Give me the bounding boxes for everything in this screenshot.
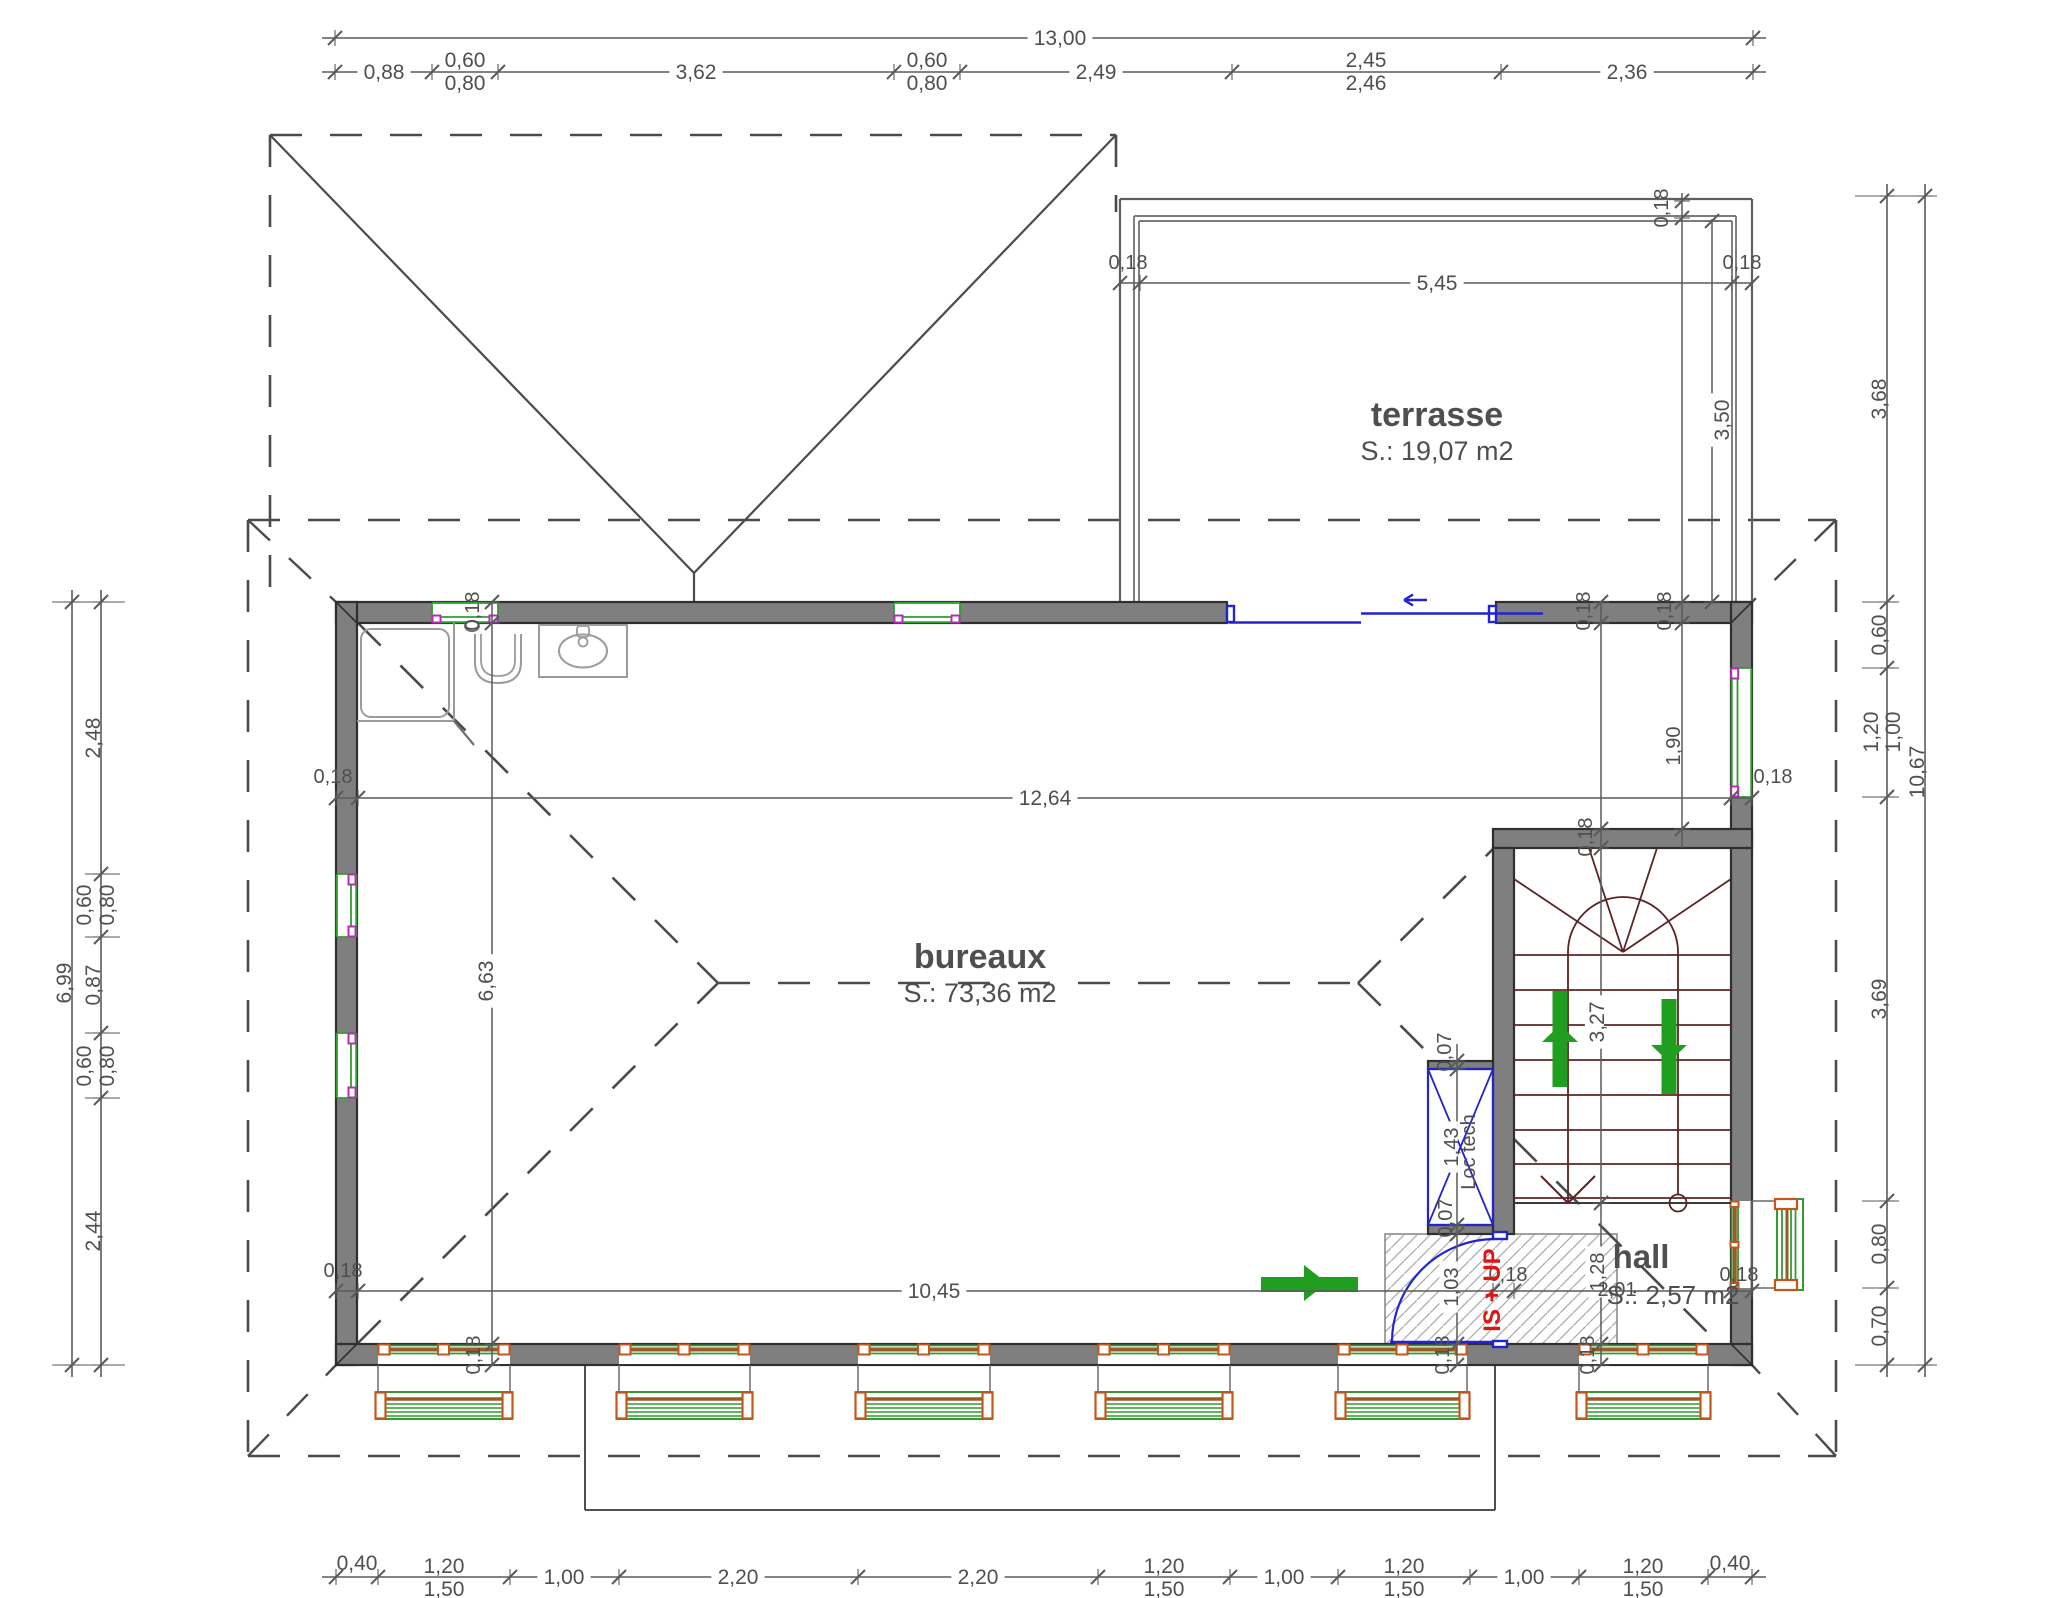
svg-text:2,49: 2,49 [1076,61,1117,84]
svg-text:bureaux: bureaux [914,938,1046,976]
svg-text:0,18: 0,18 [1577,1336,1599,1375]
svg-text:0,18: 0,18 [1575,818,1597,857]
svg-text:6,63: 6,63 [475,961,498,1002]
svg-text:1,00: 1,00 [1504,1566,1545,1589]
svg-text:1,90: 1,90 [1663,727,1685,766]
svg-text:2,36: 2,36 [1607,61,1648,84]
svg-text:2,20: 2,20 [958,1566,999,1589]
svg-text:0,80: 0,80 [445,72,486,95]
svg-text:S.: 2,57 m2: S.: 2,57 m2 [1607,1280,1740,1310]
svg-text:5,45: 5,45 [1417,272,1458,295]
svg-text:0,18: 0,18 [314,766,353,788]
svg-text:IS + UP: IS + UP [1479,1248,1506,1331]
svg-text:1,03: 1,03 [1441,1268,1463,1307]
svg-text:0,60: 0,60 [1868,615,1891,656]
svg-text:1,50: 1,50 [1623,1578,1664,1598]
svg-text:0,07: 0,07 [1434,1033,1456,1072]
svg-text:0,88: 0,88 [364,61,405,84]
svg-text:1,50: 1,50 [424,1578,465,1598]
svg-text:0,18: 0,18 [1723,252,1762,274]
svg-text:0,60: 0,60 [73,885,96,926]
svg-text:0,18: 0,18 [1754,766,1793,788]
svg-text:1,00: 1,00 [1264,1566,1305,1589]
svg-text:1,50: 1,50 [1384,1578,1425,1598]
svg-text:0,18: 0,18 [1654,592,1676,631]
svg-text:0,60: 0,60 [445,49,486,72]
svg-text:2,46: 2,46 [1346,72,1387,95]
svg-text:0,80: 0,80 [96,885,119,926]
svg-text:hall: hall [1613,1238,1670,1275]
svg-text:1,00: 1,00 [1882,712,1905,753]
svg-text:3,69: 3,69 [1868,979,1891,1020]
svg-text:0,40: 0,40 [1710,1552,1751,1575]
svg-text:terrasse: terrasse [1371,396,1503,434]
svg-text:1,20: 1,20 [1860,712,1883,753]
svg-text:0,80: 0,80 [96,1046,119,1087]
svg-text:2,48: 2,48 [82,718,105,759]
svg-text:3,62: 3,62 [676,61,717,84]
svg-text:0,70: 0,70 [1868,1306,1891,1347]
svg-text:3,68: 3,68 [1868,379,1891,420]
svg-text:0,80: 0,80 [907,72,948,95]
svg-text:0,18: 0,18 [1432,1336,1454,1375]
svg-text:S.: 19,07 m2: S.: 19,07 m2 [1360,436,1513,466]
svg-text:S.: 73,36 m2: S.: 73,36 m2 [903,978,1056,1008]
svg-text:0,18: 0,18 [462,592,484,631]
svg-text:10,67: 10,67 [1906,746,1929,799]
svg-text:2,44: 2,44 [82,1210,105,1251]
svg-text:3,50: 3,50 [1711,400,1734,441]
svg-text:1,20: 1,20 [424,1555,465,1578]
svg-text:0,18: 0,18 [1109,252,1148,274]
svg-text:1,00: 1,00 [544,1566,585,1589]
svg-text:1,20: 1,20 [1623,1555,1664,1578]
svg-text:1,20: 1,20 [1144,1555,1185,1578]
svg-text:0,87: 0,87 [82,965,105,1006]
svg-text:0,18: 0,18 [463,1336,485,1375]
svg-text:2,45: 2,45 [1346,49,1387,72]
svg-text:12,64: 12,64 [1019,787,1072,810]
svg-text:0,60: 0,60 [907,49,948,72]
svg-text:0,60: 0,60 [73,1046,96,1087]
svg-text:6,99: 6,99 [53,963,76,1004]
svg-text:10,45: 10,45 [908,1280,961,1303]
svg-text:0,18: 0,18 [324,1260,363,1282]
svg-text:0,18: 0,18 [1651,189,1673,228]
svg-text:3,27: 3,27 [1586,1002,1609,1043]
svg-text:0,18: 0,18 [1573,592,1595,631]
svg-text:1,20: 1,20 [1384,1555,1425,1578]
svg-text:0,80: 0,80 [1868,1224,1891,1265]
svg-text:0,40: 0,40 [337,1552,378,1575]
svg-text:1,50: 1,50 [1144,1578,1185,1598]
svg-text:13,00: 13,00 [1034,27,1087,50]
svg-text:0,07: 0,07 [1435,1199,1457,1238]
svg-text:1,43: 1,43 [1441,1128,1463,1167]
svg-text:2,20: 2,20 [718,1566,759,1589]
